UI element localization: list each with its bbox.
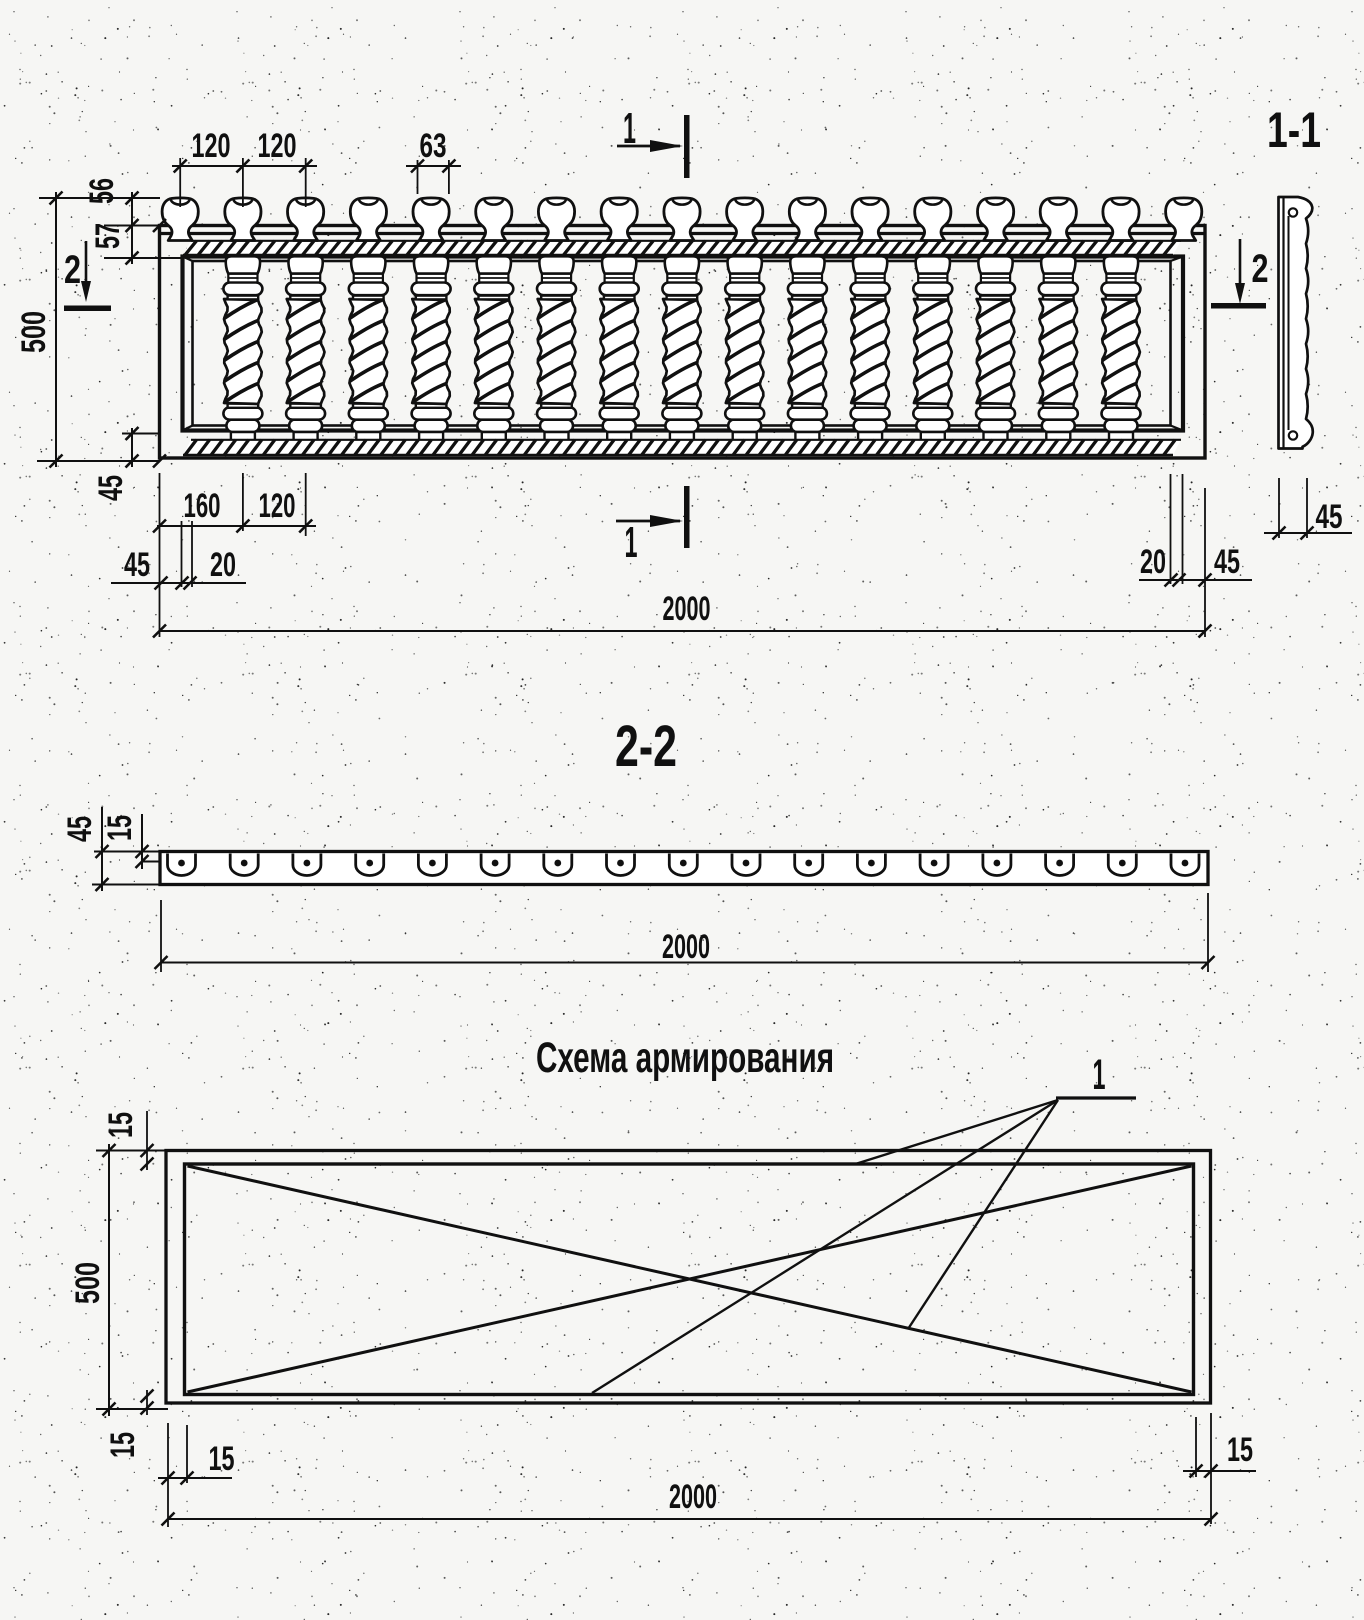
svg-text:15: 15 [102,1112,140,1138]
svg-text:2: 2 [1252,247,1269,291]
svg-text:500: 500 [15,311,53,353]
svg-text:56: 56 [83,178,121,204]
svg-text:1-1: 1-1 [1267,102,1321,158]
svg-text:45: 45 [1316,498,1343,536]
svg-text:1: 1 [623,104,636,153]
svg-text:2000: 2000 [669,1478,717,1516]
svg-text:15: 15 [209,1440,235,1478]
svg-text:57: 57 [89,223,127,249]
svg-text:500: 500 [69,1262,107,1304]
svg-text:45: 45 [124,546,150,584]
svg-text:15: 15 [1227,1431,1253,1469]
svg-text:15: 15 [104,1432,142,1458]
svg-text:2: 2 [64,248,81,292]
svg-text:20: 20 [210,546,236,584]
svg-text:120: 120 [259,487,296,525]
svg-text:1: 1 [625,518,638,567]
svg-text:120: 120 [258,127,297,165]
svg-text:1: 1 [1093,1051,1106,1099]
svg-text:45: 45 [92,475,130,501]
svg-text:63: 63 [420,127,447,165]
svg-text:20: 20 [1140,543,1166,581]
svg-text:160: 160 [184,487,221,525]
svg-text:2000: 2000 [662,928,710,966]
svg-text:15: 15 [101,815,139,841]
svg-text:Схема армирования: Схема армирования [536,1034,834,1082]
svg-text:45: 45 [1214,543,1240,581]
svg-text:2000: 2000 [663,590,711,628]
svg-text:45: 45 [61,816,99,842]
svg-text:120: 120 [192,127,231,165]
svg-text:2-2: 2-2 [615,714,677,779]
